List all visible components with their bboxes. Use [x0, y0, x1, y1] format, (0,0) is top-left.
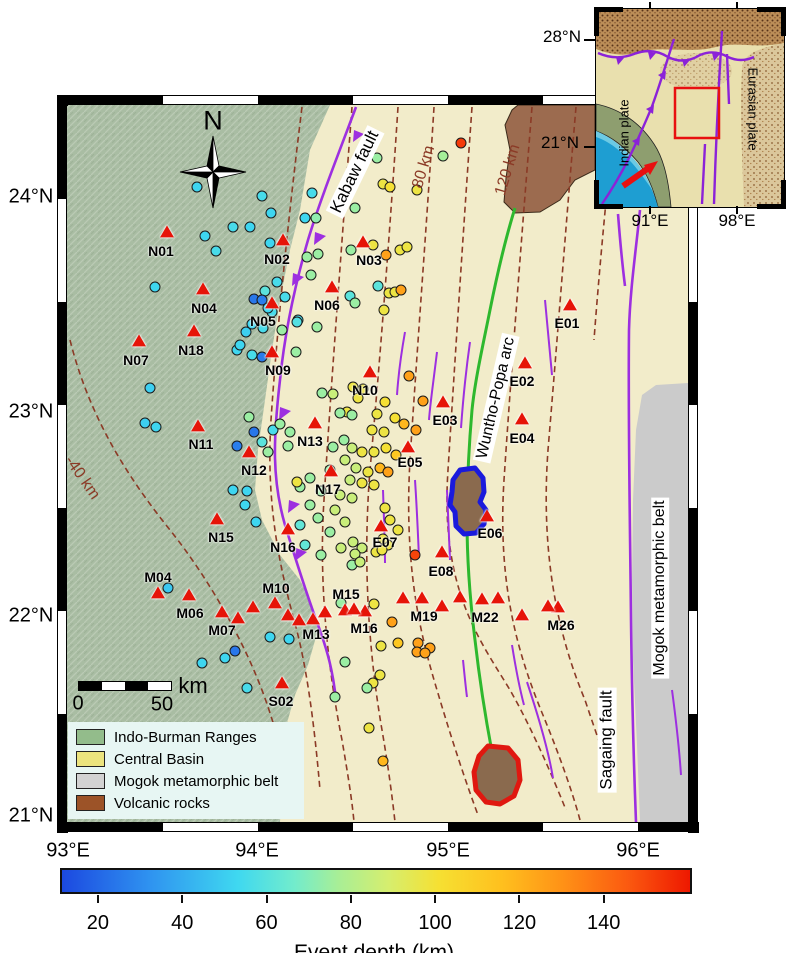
colorbar-tick — [603, 895, 605, 903]
lon-label: 93°E — [46, 840, 90, 863]
inset-lat-top-label: 28°N — [543, 27, 581, 47]
lon-label: 95°E — [426, 840, 470, 863]
map-legend: Indo-Burman RangesCentral BasinMogok met… — [68, 722, 304, 819]
figure-page: N01N02N03N04N05N06N07N18N09N10N11N12N13N… — [0, 0, 786, 953]
legend-label: Volcanic rocks — [114, 795, 210, 812]
legend-label: Mogok metamorphic belt — [114, 773, 278, 790]
colorbar-tick-label: 40 — [171, 912, 193, 935]
wuntho-popa-arc-label: Wuntho-Popa arc — [473, 333, 519, 464]
eurasian-plate-label: Eurasian plate — [746, 67, 761, 150]
kabaw-fault-label: Kabaw fault — [326, 125, 384, 218]
colorbar-tick-label: 140 — [587, 912, 620, 935]
lat-label: 24°N — [9, 186, 54, 209]
legend-swatch — [76, 773, 105, 789]
colorbar-tick — [97, 895, 99, 903]
inset-lon-left-label: 91°E — [631, 211, 668, 231]
frame-corner — [57, 822, 68, 833]
colorbar-tick — [181, 895, 183, 903]
inset-corner — [757, 180, 786, 209]
legend-label: Central Basin — [114, 751, 204, 768]
frame-corner — [57, 95, 68, 106]
inset-corner — [757, 7, 786, 36]
colorbar-tick — [350, 895, 352, 903]
scale-bar-unit: km — [178, 673, 207, 699]
lon-label: 96°E — [616, 840, 660, 863]
inset-corner — [594, 180, 623, 209]
scale-bar-fifty: 50 — [151, 694, 173, 717]
inset-lat-bottom-label: 21°N — [541, 133, 579, 153]
scale-bar-zero: 0 — [72, 693, 83, 716]
inset-corner — [594, 7, 623, 36]
colorbar-tick-label: 60 — [255, 912, 277, 935]
legend-swatch — [76, 751, 105, 767]
legend-label: Indo-Burman Ranges — [114, 729, 257, 746]
colorbar-title: Event depth (km) — [294, 941, 454, 953]
inset-lon-right-label: 98°E — [718, 211, 755, 231]
map-frame-left — [57, 105, 67, 822]
frame-corner — [688, 822, 699, 833]
legend-swatch — [76, 729, 105, 745]
compass-rose-icon — [178, 134, 248, 214]
legend-row: Mogok metamorphic belt — [76, 770, 304, 792]
colorbar-tick — [518, 895, 520, 903]
colorbar-tick-label: 100 — [418, 912, 451, 935]
colorbar-tick-label: 20 — [87, 912, 109, 935]
colorbar-tick — [434, 895, 436, 903]
legend-swatch — [76, 795, 105, 811]
legend-row: Indo-Burman Ranges — [76, 726, 304, 748]
compass-north-label: N — [203, 106, 223, 137]
map-frame-bottom — [67, 822, 688, 832]
indian-plate-label: Indian plate — [617, 99, 632, 166]
contour-label-40: -40 km — [61, 453, 103, 503]
legend-row: Volcanic rocks — [76, 792, 304, 814]
colorbar-gradient — [60, 868, 692, 894]
sagaing-fault-label: Sagaing fault — [598, 687, 617, 792]
map-frame-right — [688, 105, 698, 822]
contour-label-80: 80 km — [409, 144, 439, 191]
lon-label: 94°E — [235, 840, 279, 863]
lat-label: 22°N — [9, 605, 54, 628]
lat-label: 21°N — [9, 805, 54, 828]
mogok-belt-label: Mogok metamorphic belt — [651, 497, 669, 678]
contour-label-120: 120 km — [492, 142, 524, 197]
colorbar: 20406080100120140 Event depth (km) — [60, 868, 688, 948]
colorbar-tick-label: 120 — [503, 912, 536, 935]
legend-row: Central Basin — [76, 748, 304, 770]
colorbar-tick — [266, 895, 268, 903]
scale-bar — [78, 681, 172, 691]
colorbar-tick-label: 80 — [340, 912, 362, 935]
inset-map: Indian plate Eurasian plate — [595, 8, 785, 208]
lat-label: 23°N — [9, 401, 54, 424]
